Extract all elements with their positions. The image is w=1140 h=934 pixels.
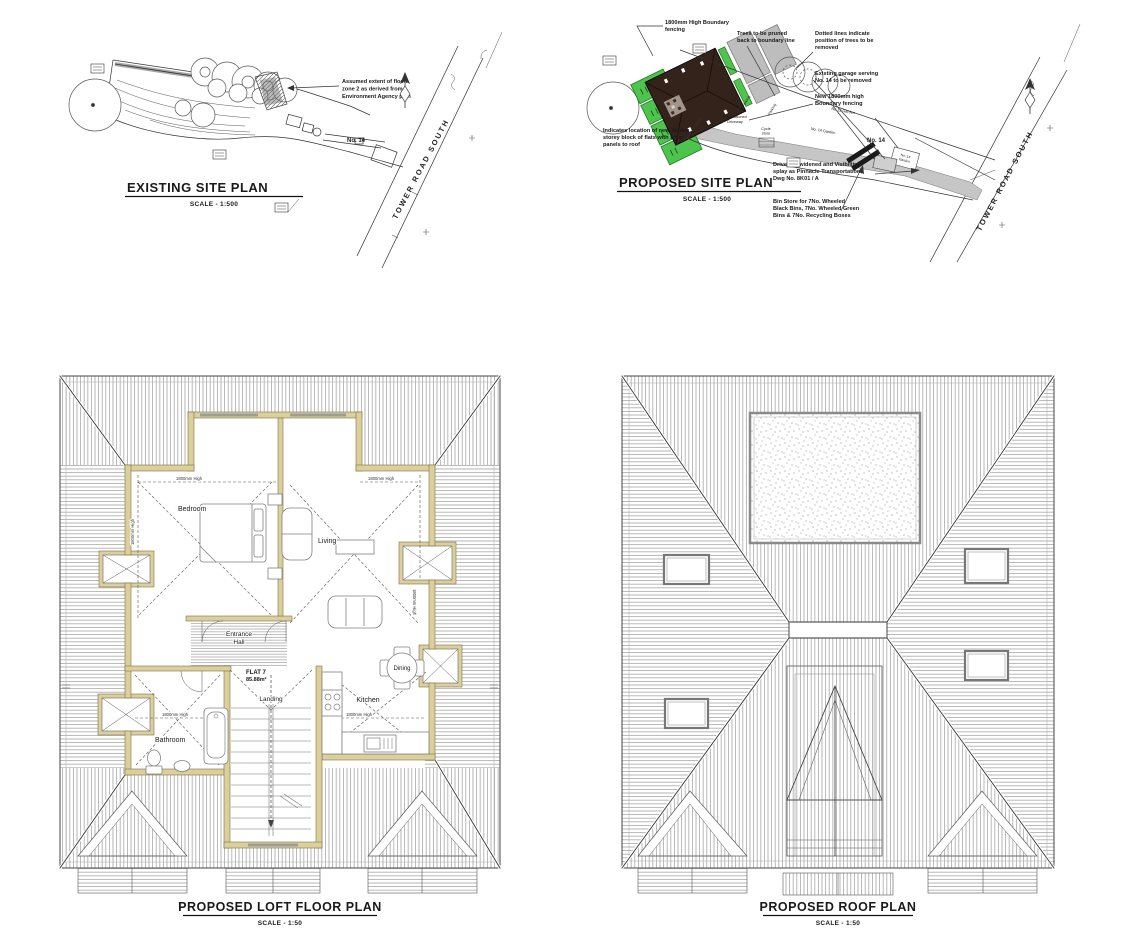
panel-scale: SCALE - 1:500 <box>683 196 731 203</box>
svg-text:panels to roof: panels to roof <box>603 142 640 148</box>
panel-scale: SCALE - 1:500 <box>190 201 238 208</box>
window <box>200 414 258 417</box>
flat-name: FLAT 7 <box>246 670 267 676</box>
panel-title: EXISTING SITE PLAN <box>127 180 268 195</box>
panel-title: PROPOSED ROOF PLAN <box>760 900 917 914</box>
room-label-entrance-2: Hall <box>233 639 245 646</box>
svg-text:1800mm High: 1800mm High <box>130 518 135 545</box>
stove <box>322 690 342 716</box>
svg-text:Bins & 7No. Recycling Boxes: Bins & 7No. Recycling Boxes <box>773 213 851 219</box>
room-label-bedroom: Bedroom <box>178 506 207 513</box>
repositioned-driveway-label: Re-positioned Driveway <box>723 115 746 124</box>
svg-text:Boundary fencing: Boundary fencing <box>815 101 863 107</box>
cycle-store: Cycle store <box>759 127 774 147</box>
title-block: PROPOSED ROOF PLAN SCALE - 1:50 <box>760 900 917 927</box>
room-label-living: Living <box>318 538 336 545</box>
road-label: TOWER ROAD SOUTH <box>974 129 1035 232</box>
panel-title: PROPOSED SITE PLAN <box>619 175 773 190</box>
svg-text:fencing: fencing <box>665 27 685 33</box>
room-label-landing: Landing <box>259 696 283 703</box>
flat-area: 85.88m² <box>246 676 267 683</box>
loft-floor-plan-panel: Bedroom Living Entrance Hall FLAT 7 85.8… <box>50 370 515 934</box>
room-label-dining: Dining <box>393 666 410 672</box>
svg-text:removed: removed <box>815 45 839 51</box>
svg-text:1800mm High: 1800mm High <box>176 476 203 481</box>
svg-text:Black Bins, 7No. Wheeled Green: Black Bins, 7No. Wheeled Green <box>773 206 860 212</box>
center-gable-projection <box>787 666 882 856</box>
svg-text:back to boundary line: back to boundary line <box>737 38 795 44</box>
svg-text:Driveway: Driveway <box>727 120 743 124</box>
svg-text:Driveway widened and Visibilit: Driveway widened and Visibility <box>773 162 858 168</box>
svg-text:New 1800mm high: New 1800mm high <box>815 94 864 100</box>
svg-text:zone 2 as derived from: zone 2 as derived from <box>342 87 403 93</box>
svg-text:Bin Store for 7No. Wheeled: Bin Store for 7No. Wheeled <box>773 199 846 205</box>
svg-text:Dotted lines indicate: Dotted lines indicate <box>815 31 870 37</box>
svg-text:storey block of flats with sol: storey block of flats with solar <box>603 135 684 141</box>
room-label-kitchen: Kitchen <box>356 697 379 704</box>
solar-panel-area <box>750 413 920 543</box>
panel-title: PROPOSED LOFT FLOOR PLAN <box>178 900 382 914</box>
title-block: PROPOSED LOFT FLOOR PLAN SCALE - 1:50 <box>178 900 382 927</box>
annotation-trees-removed: Dotted lines indicate position of trees … <box>797 31 873 68</box>
road-tower-road-south: TOWER ROAD SOUTH <box>357 32 502 268</box>
window <box>290 414 346 417</box>
no14-label: No. 14 <box>867 138 886 144</box>
svg-text:store: store <box>762 132 770 136</box>
existing-site-plan-panel: TOWER ROAD SOUTH Assumed extent of flood… <box>55 20 515 270</box>
svg-text:1800mm High: 1800mm High <box>412 589 417 616</box>
svg-text:Existing garage serving: Existing garage serving <box>815 71 879 77</box>
svg-text:Indicates location of new doub: Indicates location of new double <box>603 128 689 134</box>
panel-scale: SCALE - 1:50 <box>816 920 861 927</box>
svg-text:1800mm High Boundary: 1800mm High Boundary <box>665 20 730 26</box>
svg-text:position of trees to be: position of trees to be <box>815 38 873 44</box>
big-tree <box>587 82 639 134</box>
toilet <box>148 750 161 766</box>
panel-scale: SCALE - 1:50 <box>258 920 303 927</box>
room-label-entrance-1: Entrance <box>226 631 252 638</box>
window <box>248 844 298 847</box>
roof-plan-panel: PROPOSED ROOF PLAN SCALE - 1:50 <box>615 370 1067 934</box>
svg-text:Cycle: Cycle <box>761 127 771 131</box>
room-label-bathroom: Bathroom <box>155 737 186 744</box>
svg-text:Re-positioned: Re-positioned <box>723 115 746 119</box>
road-tower-road-south: TOWER ROAD SOUTH <box>930 24 1080 262</box>
drawing-sheet: TOWER ROAD SOUTH Assumed extent of flood… <box>0 0 1140 934</box>
flood-note: Assumed extent of flood zone 2 as derive… <box>287 79 411 100</box>
svg-text:Trees to be pruned: Trees to be pruned <box>737 31 788 37</box>
svg-text:1800mm High: 1800mm High <box>368 476 395 481</box>
svg-text:1800mm High: 1800mm High <box>346 712 373 717</box>
basin <box>174 761 190 772</box>
svg-text:Dwg No. 8K01 / A: Dwg No. 8K01 / A <box>773 176 819 182</box>
proposed-site-plan-panel: TOWER ROAD SOUTH Parking Par <box>575 10 1105 265</box>
svg-text:No. 14 to be removed: No. 14 to be removed <box>815 78 872 84</box>
svg-text:1800mm High: 1800mm High <box>162 712 189 717</box>
no12-garden-label: No 12 Garden <box>831 107 855 115</box>
road-label: TOWER ROAD SOUTH <box>390 117 451 220</box>
no14-label: No. 14 <box>347 138 366 144</box>
svg-text:splay as Pinnacle Transportati: splay as Pinnacle Transportation <box>773 169 861 175</box>
no14-garden-label: No. 14 Garden <box>811 127 836 135</box>
svg-text:Assumed extent of flood: Assumed extent of flood <box>342 79 408 85</box>
